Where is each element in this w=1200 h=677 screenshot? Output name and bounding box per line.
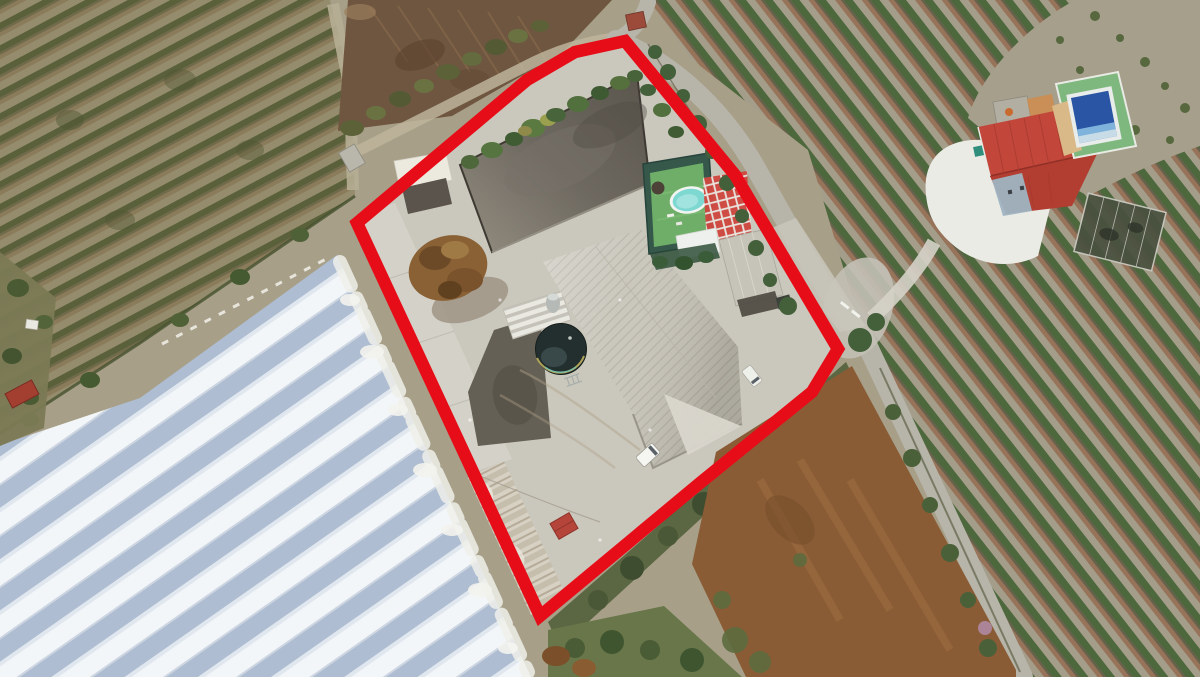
- tree-blob: [698, 251, 714, 263]
- tree-blob: [164, 69, 196, 91]
- aerial-photo: [0, 0, 1200, 677]
- tree-blob: [105, 210, 135, 230]
- tree-blob: [675, 256, 693, 270]
- tree-blob: [2, 348, 22, 364]
- aerial-photo-canvas: [0, 0, 1200, 677]
- silo-top: [548, 294, 559, 301]
- white-shack: [25, 319, 38, 330]
- tree-blob: [236, 140, 264, 160]
- tree-blob: [652, 256, 668, 268]
- dirt-pile: [542, 646, 570, 666]
- red-roof-hut: [626, 11, 647, 30]
- umbrella: [652, 182, 665, 195]
- dirt-pile: [572, 659, 596, 677]
- window: [1008, 190, 1013, 195]
- tree-blob: [171, 313, 189, 327]
- tree-blob: [230, 269, 250, 285]
- tank-highlight: [568, 336, 572, 340]
- courtyard-object: [1005, 108, 1013, 116]
- flowering-bush: [978, 621, 992, 635]
- tree-blob: [291, 228, 309, 242]
- tree-blob: [56, 110, 84, 130]
- soil-patch: [344, 4, 376, 20]
- tank-water-reflection: [541, 347, 567, 367]
- tree-blob: [80, 372, 100, 388]
- tree-blob: [7, 279, 29, 297]
- window: [1020, 186, 1025, 191]
